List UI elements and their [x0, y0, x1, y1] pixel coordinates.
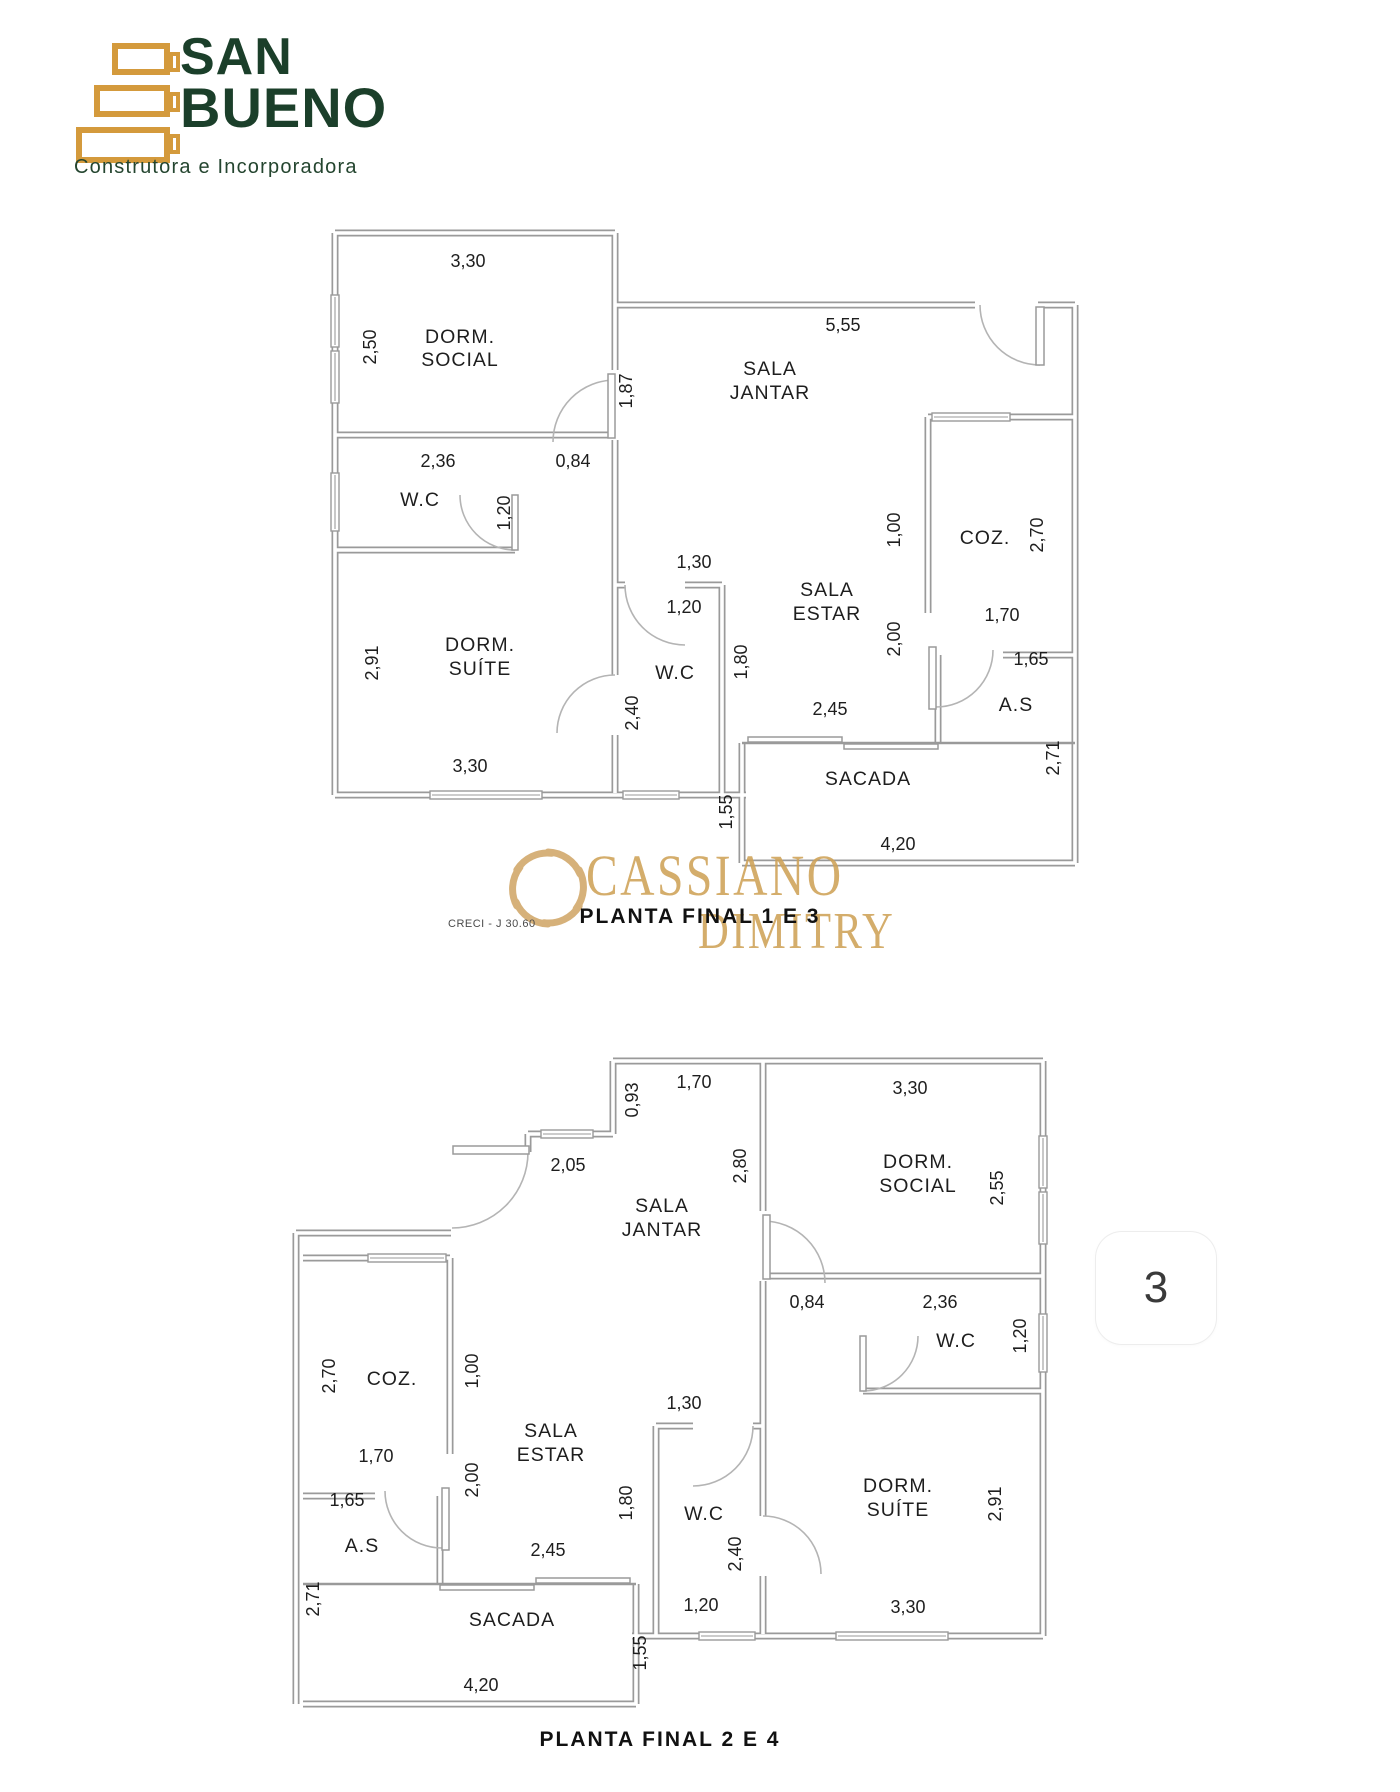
dimension-label: 1,70: [984, 605, 1019, 625]
room-label: ESTAR: [517, 1444, 586, 1466]
dimension-label: 1,20: [683, 1595, 718, 1615]
dimension-label: 2,36: [922, 1292, 957, 1312]
room-label: SALA: [743, 358, 797, 380]
dimension-label: 2,91: [985, 1486, 1005, 1521]
logo-brand-name: SAN BUENO: [180, 34, 387, 133]
dimension-label: 1,20: [494, 495, 514, 530]
dimension-label: 2,05: [550, 1155, 585, 1175]
room-label: A.S: [345, 1535, 379, 1557]
door-arc: [936, 650, 993, 707]
dimension-label: 3,30: [892, 1078, 927, 1098]
room-label: W.C: [655, 662, 695, 684]
door-leaf: [442, 1488, 449, 1550]
room-label: JANTAR: [622, 1219, 702, 1241]
room-label: W.C: [400, 489, 440, 511]
dimension-label: 4,20: [463, 1675, 498, 1695]
room-label: SACADA: [825, 768, 911, 790]
sliding-door: [844, 744, 938, 749]
dimension-label: 1,65: [329, 1490, 364, 1510]
dimension-label: 1,30: [666, 1393, 701, 1413]
room-label: JANTAR: [730, 382, 810, 404]
dimension-label: 3,30: [890, 1597, 925, 1617]
dimension-label: 2,40: [725, 1536, 745, 1571]
room-label: SOCIAL: [421, 349, 499, 371]
floor-plan-sheet: SAN BUENO Construtora e Incorporadora: [0, 0, 1400, 1792]
dimension-label: 2,70: [1027, 517, 1047, 552]
dimension-label: 0,84: [555, 451, 590, 471]
dimension-label: 5,55: [825, 315, 860, 335]
floor-plan-final-1-3: 3,302,50DORM.SOCIAL2,36W.C1,200,845,551,…: [320, 195, 1090, 880]
dimension-label: 2,36: [420, 451, 455, 471]
dimension-label: 1,55: [630, 1635, 650, 1670]
dimension-label: 3,30: [450, 251, 485, 271]
dimension-label: 2,00: [884, 621, 904, 656]
room-label: SALA: [800, 579, 854, 601]
dimension-label: 1,87: [616, 373, 636, 408]
page-marker-number: 3: [1144, 1263, 1168, 1313]
room-label: ESTAR: [793, 603, 862, 625]
door-arc: [863, 1336, 918, 1391]
room-label: SACADA: [469, 1609, 555, 1631]
dimension-label: 1,00: [884, 512, 904, 547]
dimension-label: 2,40: [622, 695, 642, 730]
room-label: SOCIAL: [879, 1175, 957, 1197]
room-label: A.S: [999, 694, 1033, 716]
door-arc: [763, 1516, 821, 1574]
dimension-label: 0,84: [789, 1292, 824, 1312]
sliding-door: [536, 1578, 630, 1583]
door-leaf: [763, 1215, 770, 1279]
san-bueno-logo: SAN BUENO Construtora e Incorporadora: [72, 38, 472, 188]
dimension-label: 0,93: [622, 1082, 642, 1117]
room-label: SUÍTE: [449, 657, 511, 680]
stacked-blocks-icon: [72, 42, 180, 164]
dimension-label: 1,55: [716, 794, 736, 829]
room-label: COZ.: [367, 1368, 418, 1390]
plan-2-caption: PLANTA FINAL 2 E 4: [410, 1728, 910, 1752]
dimension-label: 2,71: [1043, 740, 1063, 775]
sliding-door: [440, 1585, 534, 1590]
dimension-label: 1,30: [676, 552, 711, 572]
entrance-door-arc: [980, 305, 1040, 365]
dimension-label: 3,30: [452, 756, 487, 776]
sliding-door: [748, 737, 842, 742]
logo-line-2: BUENO: [180, 82, 387, 134]
watermark-brand-top: CASSIANO: [586, 842, 844, 909]
dimension-label: 1,80: [616, 1485, 636, 1520]
room-label: SALA: [635, 1195, 689, 1217]
plan-1-caption: PLANTA FINAL 1 E 3: [450, 905, 950, 929]
door-arc: [385, 1491, 442, 1548]
door-leaf: [608, 374, 615, 438]
floor-plan-final-2-4: 0,931,702,05SALAJANTAR2,803,30DORM.SOCIA…: [288, 1036, 1058, 1721]
logo-line-1: SAN: [180, 34, 387, 82]
entrance-door-leaf: [1036, 307, 1044, 365]
entry-door-leaf: [453, 1146, 529, 1154]
dimension-label: 2,50: [360, 329, 380, 364]
door-leaf: [860, 1336, 866, 1391]
dimension-label: 1,20: [1010, 1318, 1030, 1353]
entry-door-arc: [452, 1152, 528, 1228]
door-arc: [693, 1426, 753, 1486]
room-label: SALA: [524, 1420, 578, 1442]
dimension-label: 1,70: [358, 1446, 393, 1466]
dimension-label: 2,70: [319, 1358, 339, 1393]
door-arc: [557, 675, 615, 733]
door-leaf: [929, 647, 936, 709]
page-marker-card[interactable]: 3: [1096, 1232, 1216, 1344]
room-label: DORM.: [425, 326, 495, 348]
dimension-label: 2,80: [730, 1148, 750, 1183]
dimension-label: 2,71: [303, 1581, 323, 1616]
dimension-label: 2,00: [462, 1462, 482, 1497]
dimension-label: 1,00: [462, 1353, 482, 1388]
room-label: W.C: [936, 1330, 976, 1352]
dimension-label: 1,70: [676, 1072, 711, 1092]
dimension-label: 1,20: [666, 597, 701, 617]
dimension-label: 1,65: [1013, 649, 1048, 669]
room-label: DORM.: [863, 1475, 933, 1497]
plan-2-labels: 0,931,702,05SALAJANTAR2,803,30DORM.SOCIA…: [303, 1072, 1030, 1695]
room-label: COZ.: [960, 527, 1011, 549]
logo-tagline: Construtora e Incorporadora: [74, 156, 358, 179]
room-label: DORM.: [883, 1151, 953, 1173]
room-label: SUÍTE: [867, 1498, 929, 1521]
room-label: DORM.: [445, 634, 515, 656]
dimension-label: 1,80: [731, 644, 751, 679]
dimension-label: 2,45: [812, 699, 847, 719]
dimension-label: 2,45: [530, 1540, 565, 1560]
dimension-label: 2,91: [362, 645, 382, 680]
room-label: W.C: [684, 1503, 724, 1525]
dimension-label: 2,55: [987, 1170, 1007, 1205]
